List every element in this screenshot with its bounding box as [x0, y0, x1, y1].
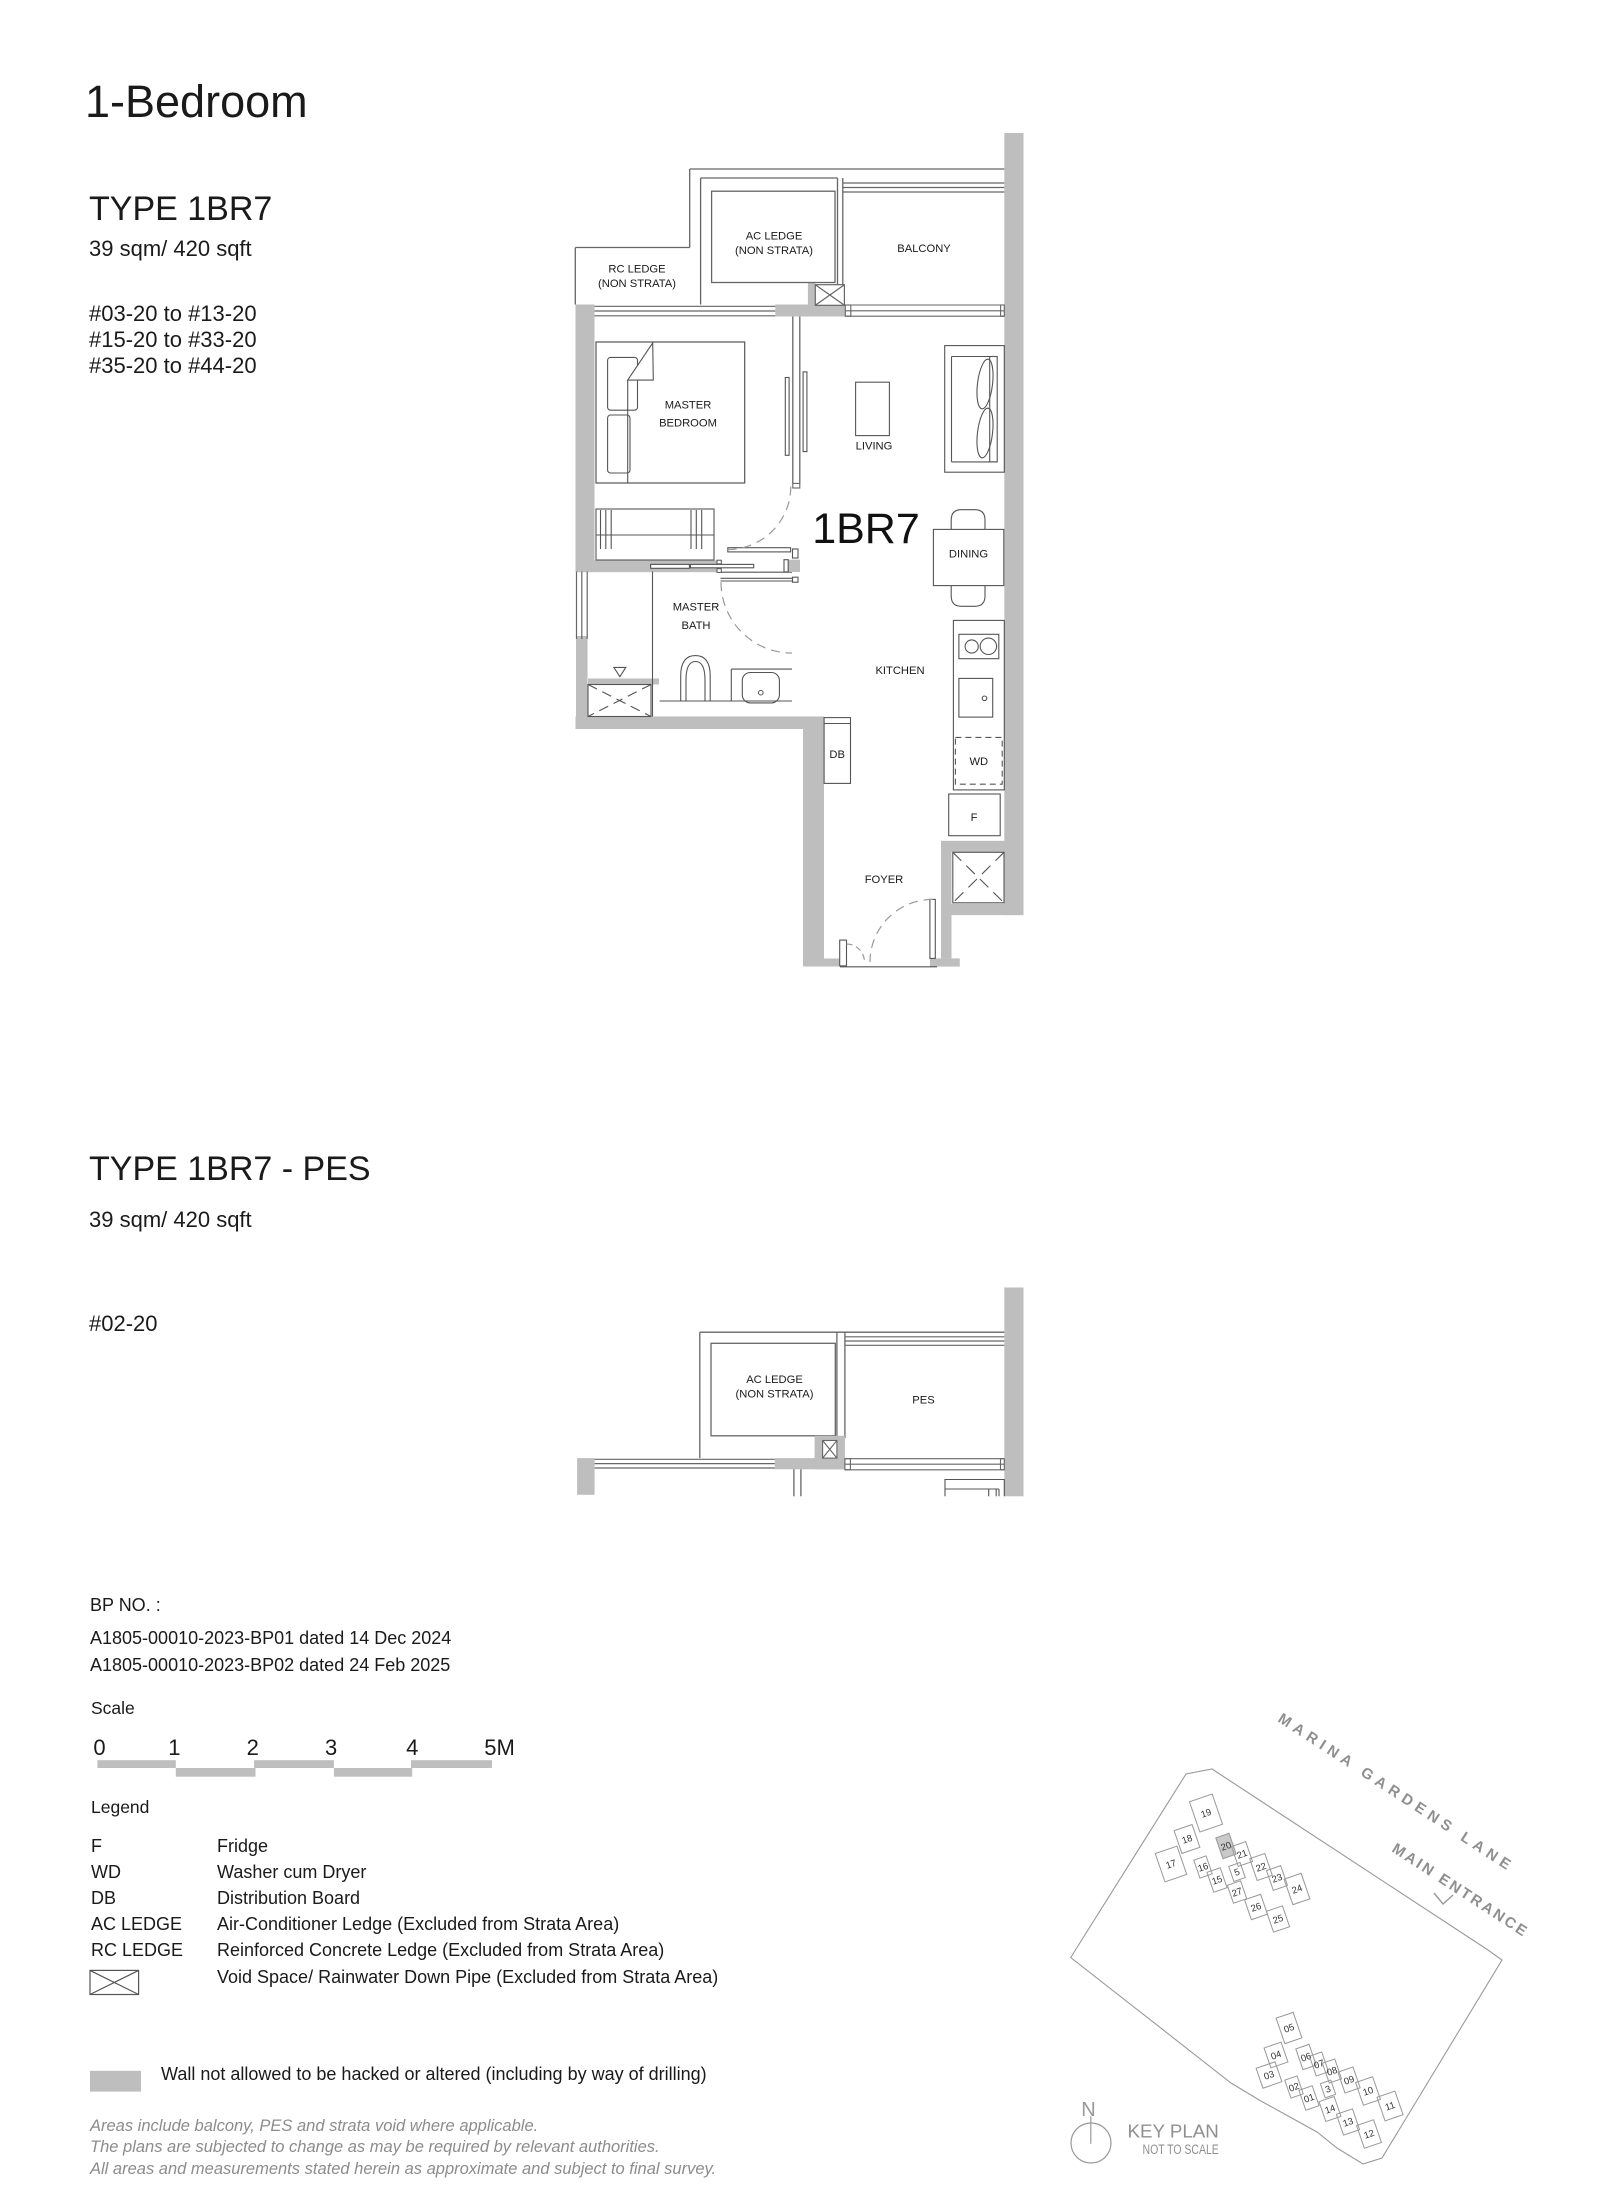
svg-text:22: 22	[1254, 1861, 1268, 1875]
svg-text:04: 04	[1269, 2049, 1283, 2063]
svg-text:AC LEDGE: AC LEDGE	[746, 1374, 803, 1386]
svg-text:2: 2	[247, 1735, 259, 1760]
svg-text:BATH: BATH	[681, 620, 710, 632]
svg-text:24: 24	[1290, 1883, 1304, 1897]
svg-text:1: 1	[168, 1735, 180, 1760]
svg-text:27: 27	[1230, 1886, 1244, 1900]
svg-text:N: N	[1081, 2099, 1095, 2121]
svg-text:14: 14	[1323, 2103, 1337, 2117]
svg-text:11: 11	[1384, 2100, 1397, 2114]
svg-text:FOYER: FOYER	[865, 874, 904, 886]
svg-text:DINING: DINING	[949, 548, 988, 560]
svg-text:WD: WD	[969, 756, 988, 768]
svg-text:15: 15	[1210, 1874, 1224, 1888]
svg-text:05: 05	[1282, 2022, 1296, 2036]
svg-text:09: 09	[1342, 2074, 1356, 2088]
svg-text:26: 26	[1249, 1901, 1263, 1915]
svg-text:F: F	[971, 812, 978, 824]
svg-text:18: 18	[1180, 1833, 1194, 1847]
svg-text:MASTER: MASTER	[665, 400, 712, 412]
svg-text:MASTER: MASTER	[673, 602, 720, 614]
svg-text:5: 5	[1233, 1867, 1242, 1879]
svg-text:(NON STRATA): (NON STRATA)	[598, 278, 676, 290]
svg-text:06: 06	[1299, 2051, 1313, 2065]
svg-text:3: 3	[325, 1735, 337, 1760]
svg-text:BEDROOM: BEDROOM	[659, 417, 717, 429]
svg-text:PES: PES	[912, 1395, 934, 1407]
svg-text:(NON STRATA): (NON STRATA)	[736, 1388, 814, 1400]
svg-text:KITCHEN: KITCHEN	[875, 665, 924, 677]
svg-text:NOT TO SCALE: NOT TO SCALE	[1143, 2142, 1219, 2157]
svg-text:21: 21	[1235, 1848, 1249, 1862]
svg-text:KEY PLAN: KEY PLAN	[1128, 2121, 1219, 2142]
svg-text:17: 17	[1164, 1858, 1178, 1872]
svg-text:RC LEDGE: RC LEDGE	[608, 264, 665, 276]
svg-text:10: 10	[1361, 2085, 1375, 2099]
svg-text:13: 13	[1341, 2116, 1355, 2130]
svg-text:(NON STRATA): (NON STRATA)	[735, 245, 813, 257]
svg-text:1BR7: 1BR7	[812, 505, 920, 553]
svg-text:03: 03	[1262, 2069, 1276, 2083]
svg-text:23: 23	[1270, 1872, 1284, 1886]
svg-text:AC LEDGE: AC LEDGE	[746, 231, 803, 243]
svg-text:5M: 5M	[484, 1735, 515, 1760]
svg-text:DB: DB	[829, 749, 845, 761]
svg-text:3: 3	[1324, 2084, 1333, 2096]
svg-text:12: 12	[1362, 2128, 1376, 2142]
svg-text:MAIN ENTRANCE: MAIN ENTRANCE	[1389, 1840, 1532, 1941]
svg-text:4: 4	[406, 1735, 418, 1760]
svg-text:LIVING: LIVING	[856, 441, 893, 453]
svg-text:BALCONY: BALCONY	[897, 243, 951, 255]
svg-text:01: 01	[1302, 2092, 1316, 2106]
svg-text:19: 19	[1199, 1807, 1213, 1821]
svg-text:0: 0	[93, 1735, 105, 1760]
svg-text:25: 25	[1271, 1913, 1285, 1927]
